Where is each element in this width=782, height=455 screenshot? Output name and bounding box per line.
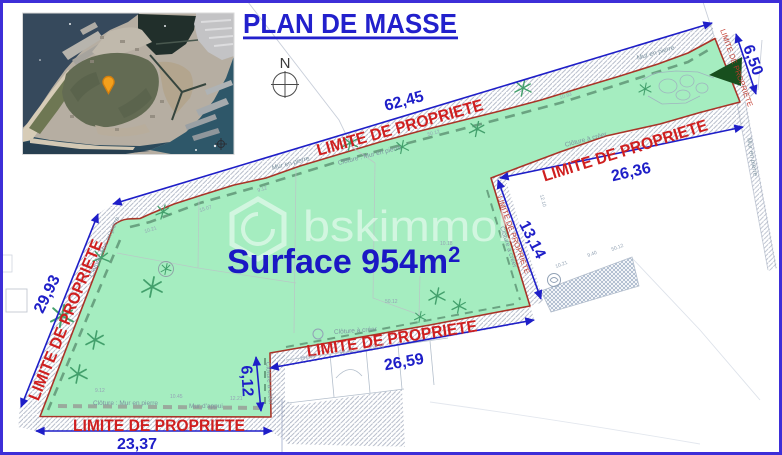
svg-text:12.21: 12.21 xyxy=(230,396,243,402)
svg-text:50.12: 50.12 xyxy=(385,299,398,305)
svg-text:9.12: 9.12 xyxy=(95,388,105,394)
svg-text:10.18: 10.18 xyxy=(440,241,453,247)
svg-text:Clôture : Mur en pierre: Clôture : Mur en pierre xyxy=(93,400,158,407)
svg-text:6,12: 6,12 xyxy=(237,365,256,397)
svg-text:Mur d'appui: Mur d'appui xyxy=(189,403,223,410)
svg-text:Surface 954m2: Surface 954m2 xyxy=(227,242,460,281)
svg-text:PLAN DE MASSE: PLAN DE MASSE xyxy=(243,8,457,39)
svg-text:N: N xyxy=(280,55,291,72)
svg-text:LIMITE DE PROPRIETE: LIMITE DE PROPRIETE xyxy=(73,417,245,435)
svg-text:23,37: 23,37 xyxy=(117,436,157,453)
svg-text:10.45: 10.45 xyxy=(170,394,183,400)
